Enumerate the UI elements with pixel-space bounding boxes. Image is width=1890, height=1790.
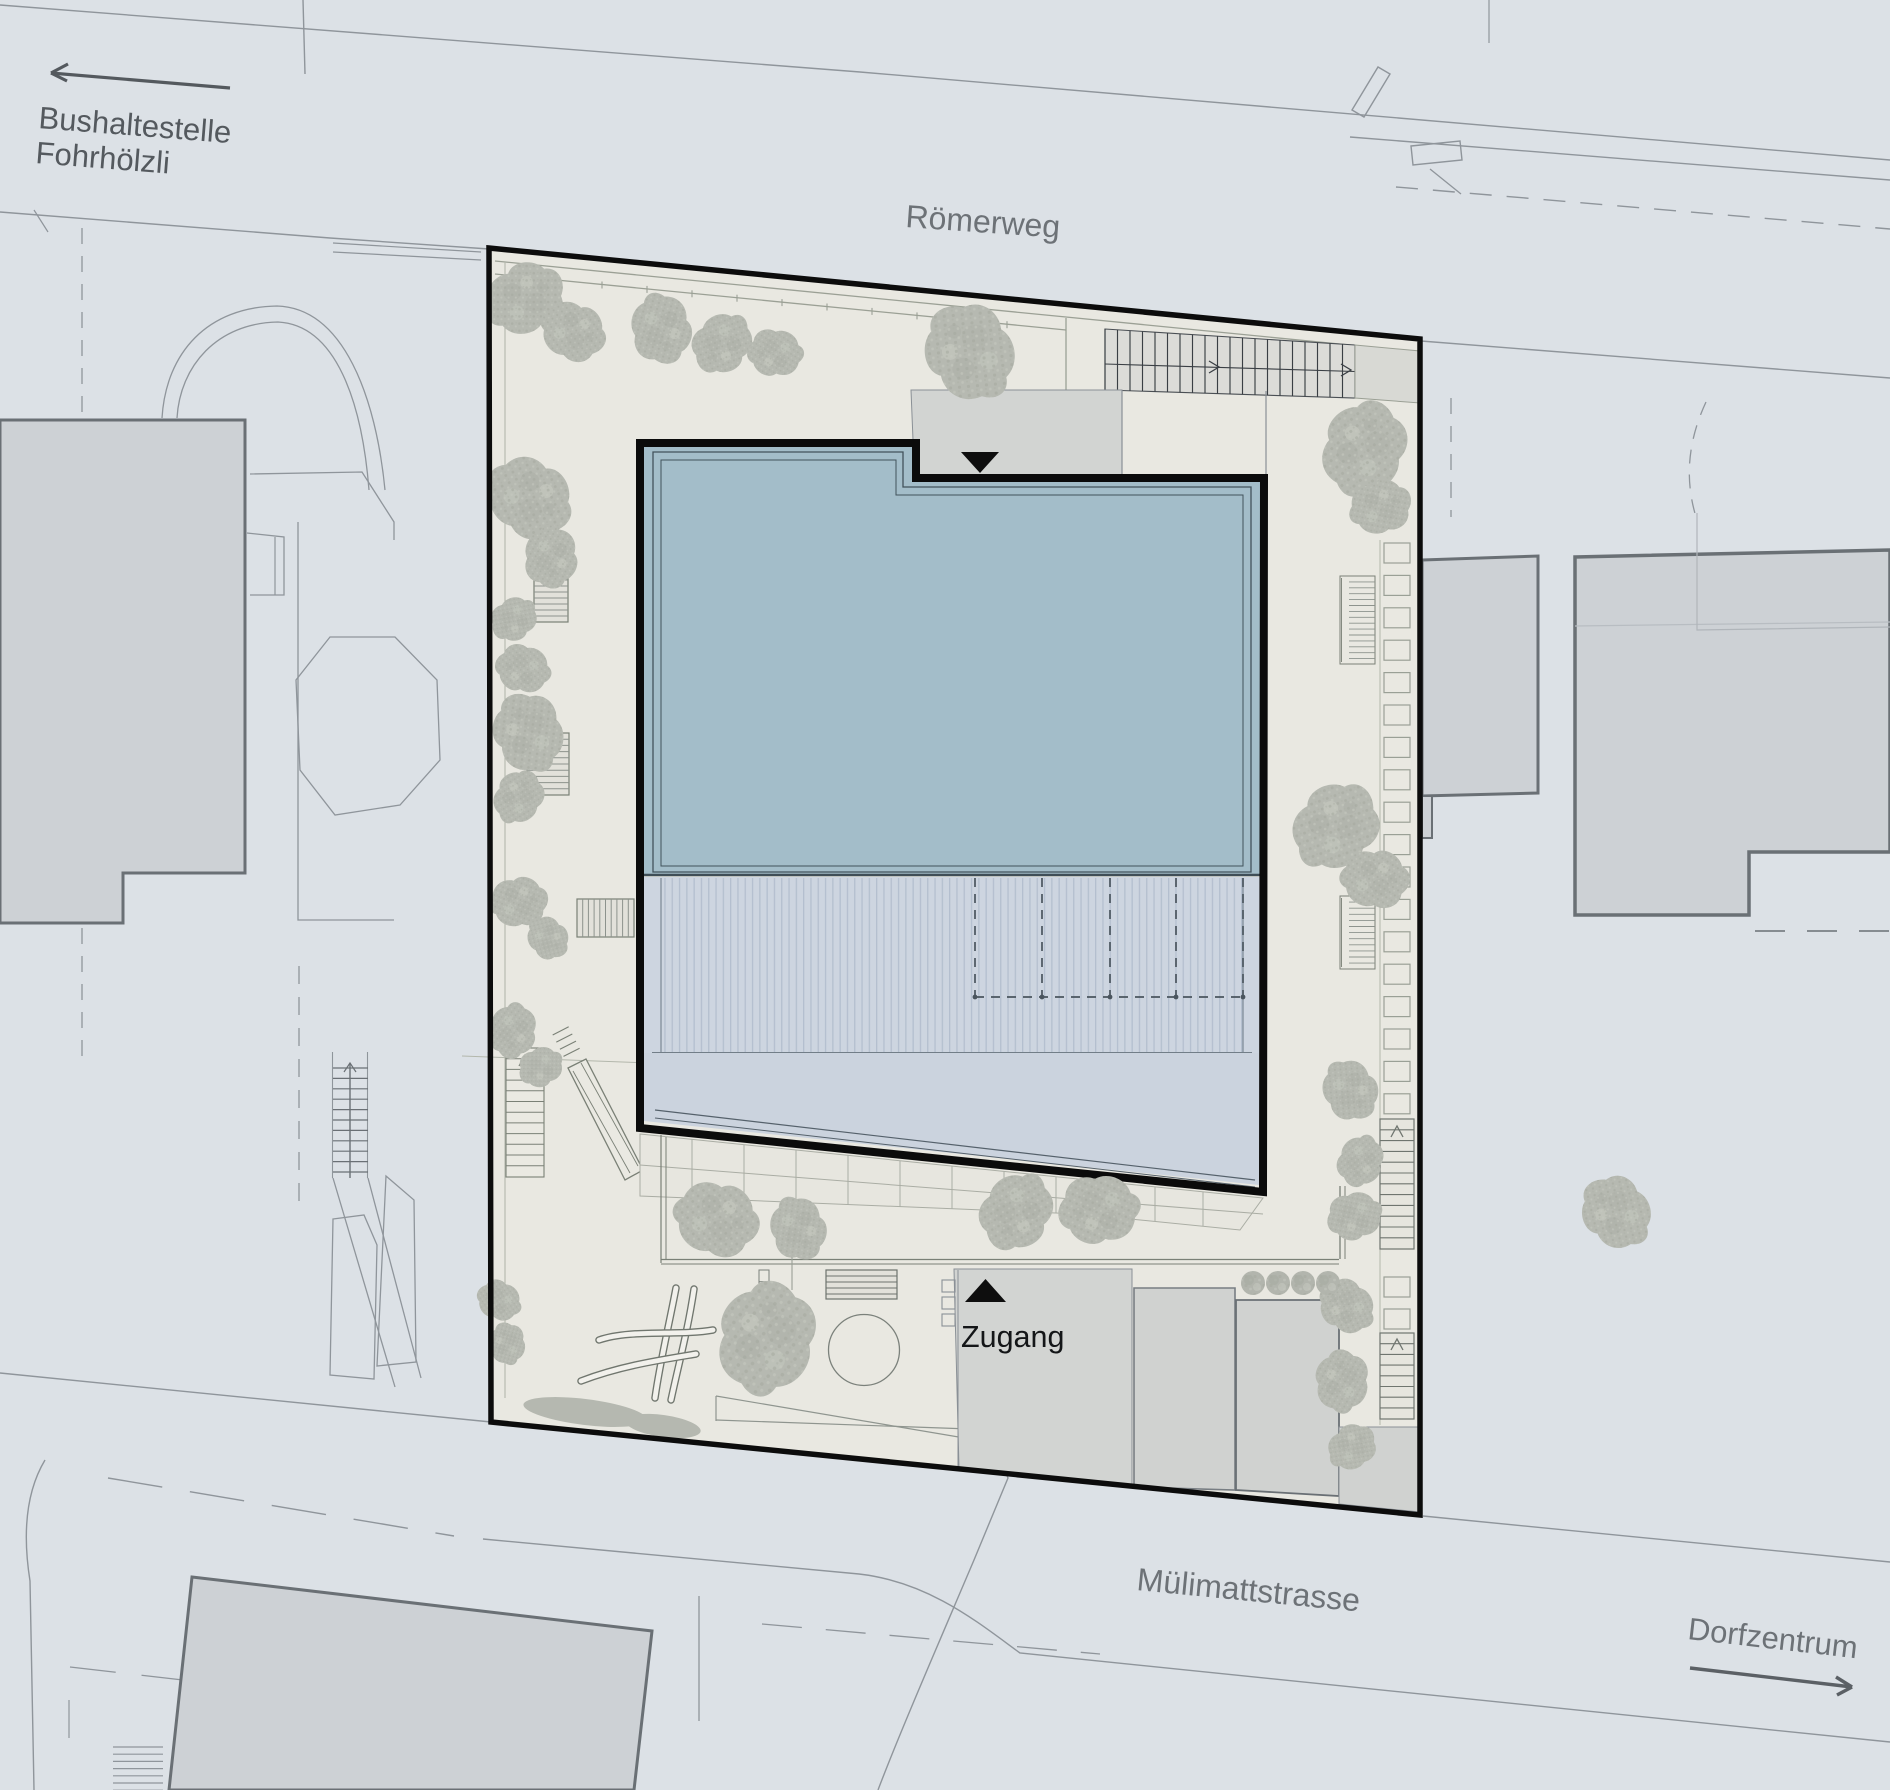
svg-text:Zugang: Zugang (961, 1320, 1064, 1354)
